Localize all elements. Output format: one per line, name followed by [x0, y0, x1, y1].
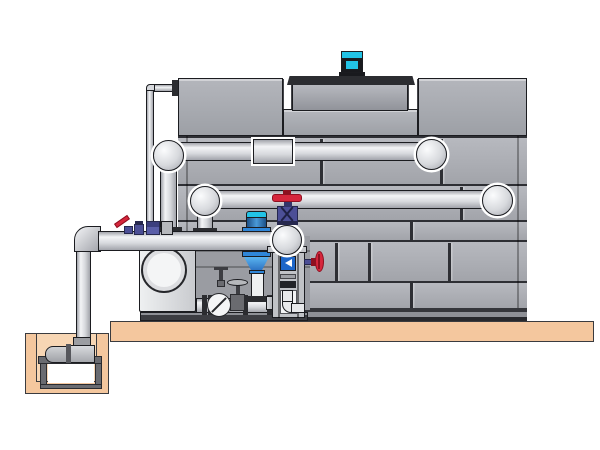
- supply-pipe-horizontal: [180, 142, 422, 161]
- concrete-platform: [110, 321, 594, 342]
- globe-valve-handwheel: [272, 194, 302, 202]
- illustration-canvas: [0, 0, 600, 450]
- pump-suction-eye: [141, 247, 187, 293]
- sump-pump-motor: [45, 346, 68, 363]
- inline-pump-bottom-flange: [247, 296, 268, 302]
- supply-pipe-collar: [253, 139, 293, 164]
- return-pipe-elbow-right: [482, 185, 513, 216]
- panel-seam: [335, 243, 338, 281]
- column-elbow-outlet: [291, 303, 305, 313]
- petcock-body: [217, 280, 225, 287]
- filter-arrow-icon: [285, 259, 292, 267]
- panel-seam: [410, 283, 413, 308]
- return-pipe-elbow-left: [190, 186, 220, 216]
- panel-seam: [448, 243, 451, 281]
- sump-riser-pipe: [76, 250, 91, 342]
- panel-seam: [368, 243, 371, 281]
- header-fitting-box: [161, 221, 173, 235]
- solenoid-valve-1: [134, 224, 144, 235]
- fan-shroud: [292, 84, 408, 111]
- tower-center-wall: [283, 109, 418, 136]
- discharge-header-pipe: [98, 231, 280, 251]
- gate-valve-body: [230, 294, 245, 311]
- supply-pipe-elbow-left: [153, 140, 184, 171]
- panel-seam: [410, 222, 413, 240]
- make-up-line-flange: [172, 80, 178, 96]
- column-dark-slot: [280, 281, 296, 288]
- tower-top-box-left: [178, 78, 283, 136]
- header-elbow-corner: [74, 226, 101, 252]
- side-valve-wheel-line: [318, 254, 320, 269]
- lever-ball-valve-body: [124, 226, 133, 234]
- return-pipe-horizontal: [218, 190, 484, 209]
- make-up-line-horizontal: [154, 84, 173, 92]
- column-gray-bar: [280, 274, 296, 279]
- tower-top-box-right: [418, 78, 527, 136]
- sump-pump-inlet-fitting: [73, 337, 91, 346]
- header-elbow-down: [272, 225, 302, 255]
- pump-stand-window: [48, 364, 94, 383]
- pump-stand-leg-left: [40, 363, 47, 386]
- sump-pump-coupling: [66, 344, 71, 363]
- fan-motor-window: [346, 61, 358, 69]
- pump-stand-bottom: [40, 384, 102, 389]
- pump-stand-leg-right: [95, 363, 102, 386]
- solenoid-valve-2: [146, 221, 160, 235]
- fan-deck: [287, 76, 415, 85]
- gate-valve-handwheel: [227, 279, 248, 286]
- sump-pump-casing: [68, 345, 95, 363]
- inline-pump-motor-base: [242, 227, 271, 232]
- tower-edge-right: [517, 136, 519, 308]
- supply-pipe-elbow-right: [416, 139, 447, 170]
- globe-valve-hub: [283, 190, 291, 195]
